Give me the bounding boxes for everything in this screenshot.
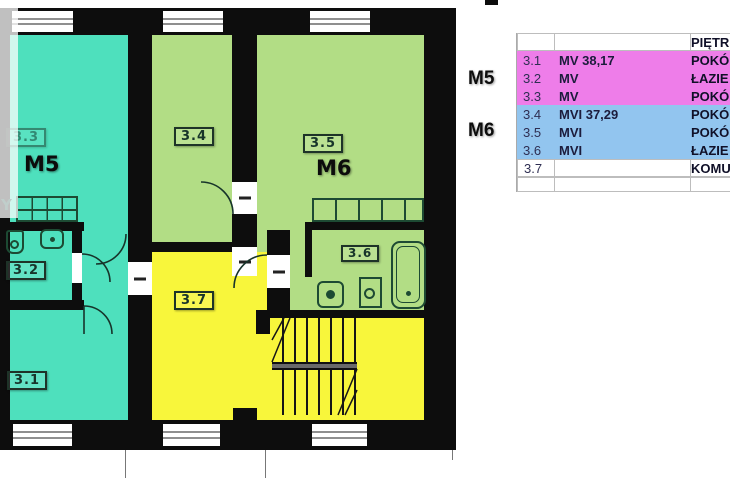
cell-no: 3.7 — [517, 159, 555, 177]
cell-unit — [555, 159, 691, 177]
room-label-3-2: 3.2 — [6, 261, 46, 280]
cell-no: 3.3 — [517, 89, 555, 104]
legend-table: PIĘTR 3.1 MV 38,17 POKÓ 3.2 MV ŁAZIE 3.3… — [516, 33, 730, 192]
cell-no: 3.2 — [517, 71, 555, 86]
room-label-3-7: 3.7 — [174, 291, 214, 310]
cell-name: POKÓ — [691, 53, 730, 68]
cell-name: POKÓ — [691, 89, 730, 104]
cell-no: 3.1 — [517, 53, 555, 68]
cell-empty — [691, 177, 730, 192]
room-label-3-6: 3.6 — [341, 245, 379, 262]
door-arc-32 — [82, 254, 110, 282]
floorplan-page: { "plan": { "watermark_text": "Y", "apar… — [0, 0, 730, 480]
legend-group-label-m5: M5 — [468, 68, 494, 90]
door-arc-31 — [84, 306, 112, 334]
cell-unit: MV — [555, 89, 691, 104]
cell-name: POKÓ — [691, 107, 730, 122]
room-label-3-4: 3.4 — [174, 127, 214, 146]
cell-no: 3.6 — [517, 143, 555, 158]
legend-row-3-3: 3.3 MV POKÓ — [517, 87, 730, 105]
legend-empty-row — [517, 177, 730, 192]
cell-no: 3.5 — [517, 125, 555, 140]
cell-unit: MV — [555, 71, 691, 86]
apartment-label-m6: M6 — [316, 156, 352, 180]
room-label-3-1: 3.1 — [7, 371, 47, 390]
cell-name: ŁAZIE — [691, 71, 730, 86]
header-cell-floor: PIĘTR — [691, 33, 730, 51]
header-cell-unit — [555, 33, 691, 51]
legend-row-3-6: 3.6 MVI ŁAZIE — [517, 141, 730, 159]
door-arc-34 — [201, 182, 233, 214]
legend-row-3-1: 3.1 MV 38,17 POKÓ — [517, 51, 730, 69]
room-label-3-5: 3.5 — [303, 134, 343, 153]
legend-row-3-2: 3.2 MV ŁAZIE — [517, 69, 730, 87]
legend-row-3-5: 3.5 MVI POKÓ — [517, 123, 730, 141]
door-arc-vestibule — [234, 255, 267, 288]
cell-name: KOMU — [691, 159, 730, 177]
cell-empty — [517, 177, 555, 192]
apartment-label-m5: M5 — [24, 152, 60, 176]
cell-empty — [555, 177, 691, 192]
legend-group-label-m6: M6 — [468, 120, 494, 142]
door-arc-hall — [96, 234, 126, 264]
legend-row-3-7: 3.7 KOMU — [517, 159, 730, 177]
top-edge-mark — [485, 0, 498, 5]
cell-unit: MVI 37,29 — [555, 107, 691, 122]
header-cell-no — [517, 33, 555, 51]
cell-unit: MVI — [555, 143, 691, 158]
cell-name: POKÓ — [691, 125, 730, 140]
legend-header-row: PIĘTR — [517, 33, 730, 51]
cell-no: 3.4 — [517, 107, 555, 122]
floor-plan: 3.3 3.4 3.5 3.2 3.6 3.7 3.1 M5 M6 Y — [0, 0, 465, 480]
cell-unit: MVI — [555, 125, 691, 140]
legend-row-3-4: 3.4 MVI 37,29 POKÓ — [517, 105, 730, 123]
cell-unit: MV 38,17 — [555, 53, 691, 68]
door-arcs-overlay — [0, 0, 465, 480]
cell-name: ŁAZIE — [691, 143, 730, 158]
white-wash-overlay — [0, 0, 18, 218]
